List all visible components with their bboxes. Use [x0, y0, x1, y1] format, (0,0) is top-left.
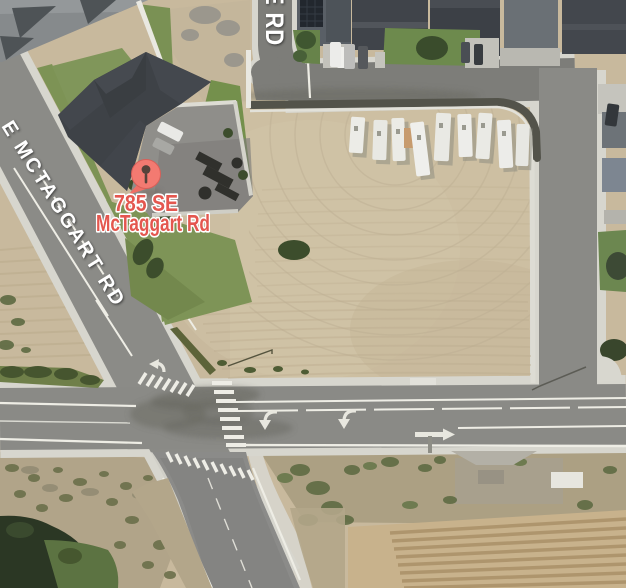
svg-text:E RD: E RD — [260, 0, 288, 46]
svg-text:McTaggart Rd: McTaggart Rd — [96, 210, 210, 236]
